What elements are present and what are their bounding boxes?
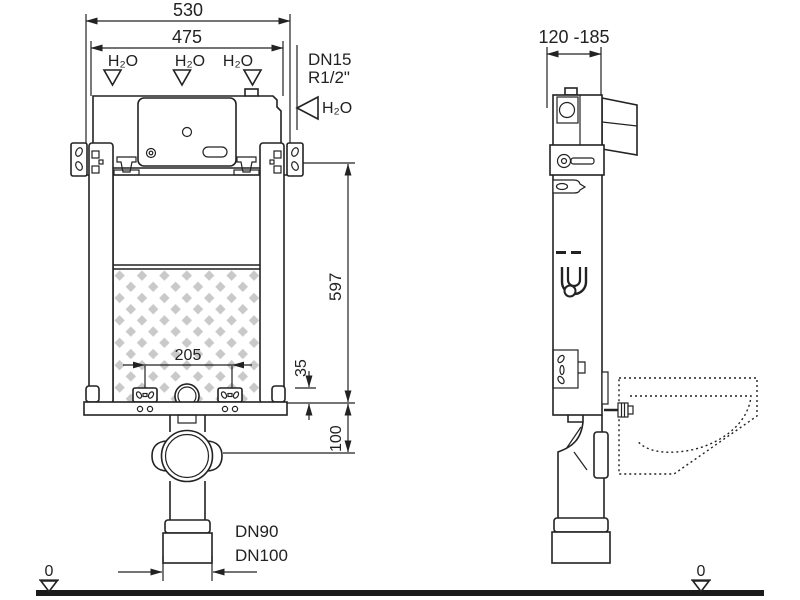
supply-annotation: DN15 R1/2" H₂O [297, 45, 352, 130]
technical-drawing-canvas: 530 475 H₂O H₂O H₂O DN15 R1/2" H₂O [0, 0, 800, 600]
wall-bracket [602, 98, 637, 155]
water-label-3: H₂O [223, 53, 253, 70]
inlet-connector [245, 89, 258, 96]
cistern-side-body [550, 88, 637, 415]
side-view: 120 -185 [538, 27, 757, 563]
water-label-2: H₂O [175, 53, 205, 70]
ground-line [36, 590, 764, 596]
level-marker-right: 0 [691, 563, 711, 592]
rod-nut [618, 403, 628, 417]
dim-205-label: 205 [175, 347, 202, 364]
dim-depth-label: 120 -185 [538, 27, 609, 47]
dim-597-label: 597 [326, 273, 345, 301]
water-flow-icon-3 [244, 70, 261, 85]
side-drain-collar [554, 518, 608, 532]
flush-connection-plate [594, 432, 608, 478]
panel-screw [147, 149, 156, 158]
dim-530-label: 530 [173, 0, 203, 20]
level-marker-icon-right [693, 581, 709, 592]
water-label-1: H₂O [108, 53, 138, 70]
technical-drawing-page: 530 475 H₂O H₂O H₂O DN15 R1/2" H₂O [0, 0, 800, 600]
water-flow-icon-1 [104, 70, 121, 85]
drain-collar [165, 520, 210, 533]
insulation-foam [114, 270, 261, 402]
dim-35-label: 35 [293, 359, 310, 377]
drain-sleeve [163, 533, 212, 563]
supply-thread-label: R1/2" [308, 68, 350, 87]
level-marker-left: 0 [39, 563, 59, 592]
drain-dn90-label: DN90 [235, 522, 278, 541]
dim-475-label: 475 [172, 27, 202, 47]
access-panel [138, 98, 236, 166]
toilet-bowl-outline [619, 378, 757, 474]
side-drain-sleeve [552, 532, 610, 563]
zero-left-label: 0 [45, 563, 54, 580]
side-outlet [552, 415, 610, 563]
supply-water-label: H₂O [322, 100, 352, 117]
front-view: 530 475 H₂O H₂O H₂O DN15 R1/2" H₂O [71, 0, 355, 581]
water-flow-icon-2 [174, 70, 191, 85]
left-rail [89, 143, 113, 403]
ground: 0 0 [36, 563, 764, 596]
panel-hole [183, 128, 192, 137]
mounting-rod [604, 403, 633, 417]
dim-100-label: 100 [328, 425, 345, 452]
drain-neck [178, 415, 196, 423]
panel-slot [203, 147, 227, 157]
level-marker-icon-left [41, 581, 57, 592]
zero-right-label: 0 [697, 563, 706, 580]
water-inlet-markers: H₂O H₂O H₂O [104, 53, 261, 85]
right-rail [260, 143, 284, 403]
bowl-mount-plate [602, 372, 608, 404]
inlet-connector-side [565, 88, 577, 95]
water-supply-icon [297, 97, 318, 119]
base-rail [84, 402, 287, 415]
supply-dn15-label: DN15 [308, 50, 351, 69]
drain-dn100-label: DN100 [235, 546, 288, 565]
